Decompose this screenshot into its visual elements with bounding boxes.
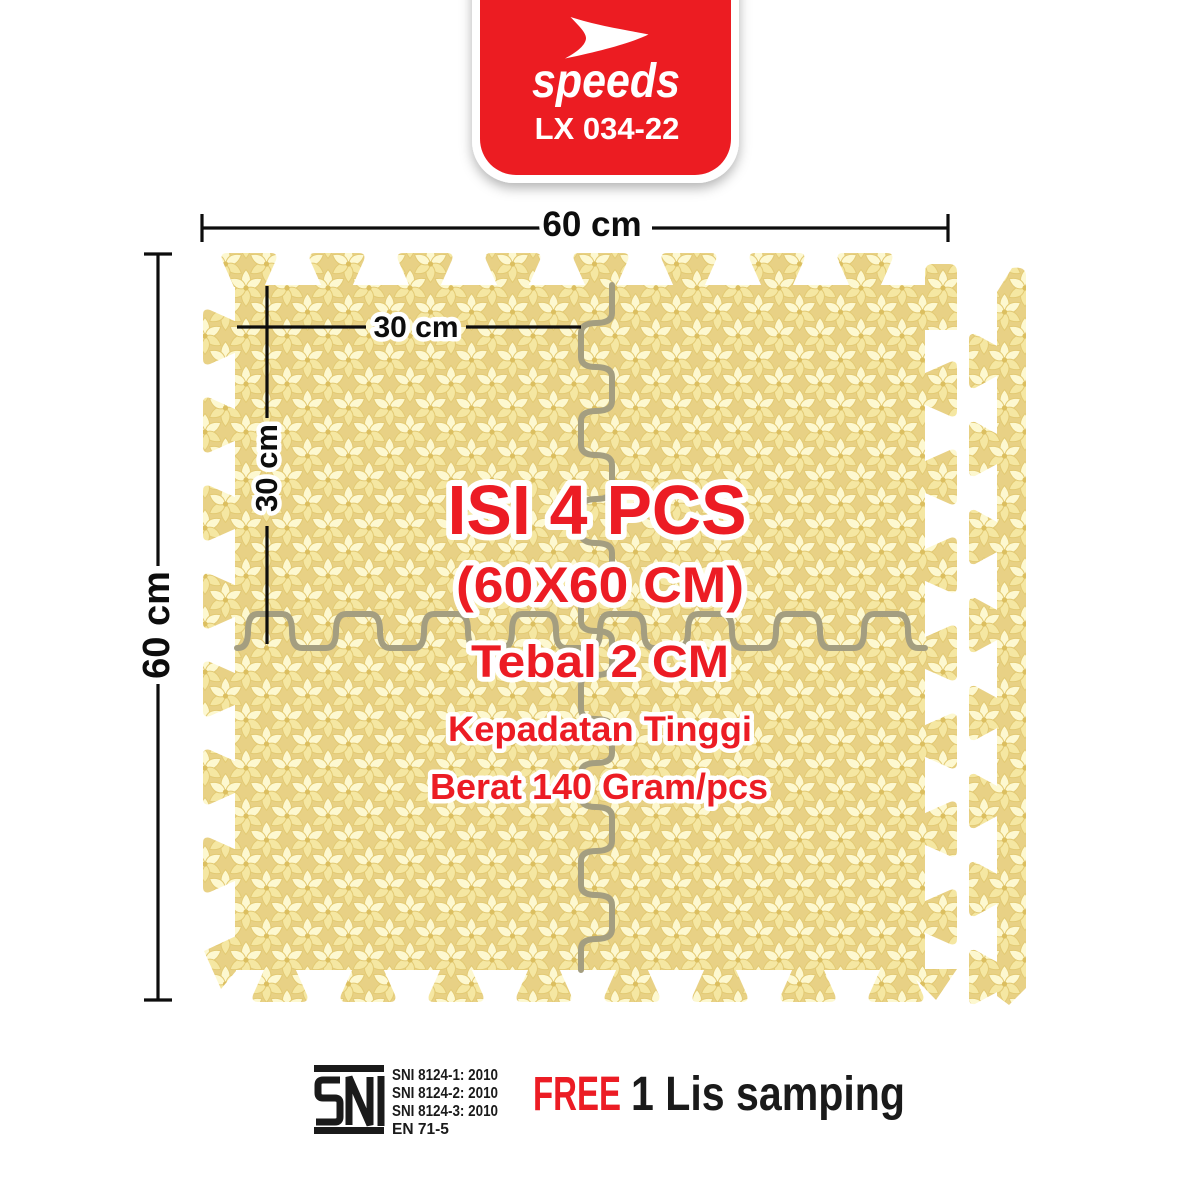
svg-text:60 cm: 60 cm: [136, 571, 178, 679]
svg-text:30 cm: 30 cm: [373, 311, 458, 344]
svg-text:SNI 8124-2: 2010: SNI 8124-2: 2010: [392, 1085, 498, 1102]
svg-text:FREE: FREE: [533, 1068, 621, 1121]
svg-text:Berat 140 Gram/pcs: Berat 140 Gram/pcs: [430, 766, 768, 807]
svg-text:60 cm: 60 cm: [542, 205, 641, 244]
svg-text:SNI 8124-1: 2010: SNI 8124-1: 2010: [392, 1067, 498, 1084]
svg-text:(60X60 CM): (60X60 CM): [456, 557, 744, 613]
svg-text:Tebal 2 CM: Tebal 2 CM: [471, 636, 729, 687]
svg-text:speeds: speeds: [532, 55, 680, 108]
svg-text:1 Lis samping: 1 Lis samping: [631, 1068, 905, 1121]
svg-text:ISI 4 PCS: ISI 4 PCS: [448, 471, 747, 549]
svg-text:EN 71-5: EN 71-5: [392, 1121, 449, 1138]
svg-text:Kepadatan Tinggi: Kepadatan Tinggi: [448, 709, 752, 749]
svg-text:30 cm: 30 cm: [249, 424, 284, 512]
svg-text:SNI 8124-3: 2010: SNI 8124-3: 2010: [392, 1103, 498, 1120]
svg-text:LX 034-22: LX 034-22: [535, 111, 680, 146]
